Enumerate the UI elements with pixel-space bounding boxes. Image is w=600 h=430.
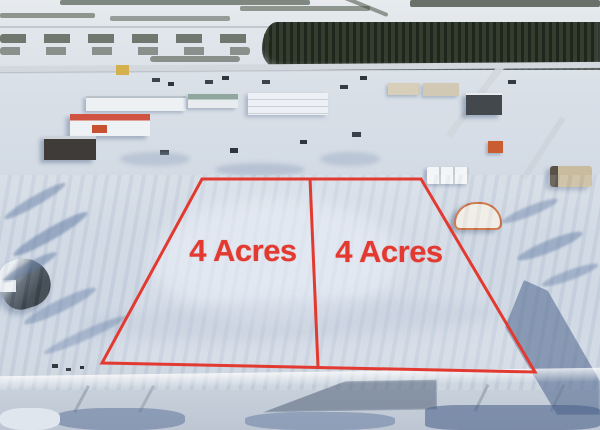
parcel-boundary-line	[102, 179, 535, 372]
parcel-overlay	[0, 0, 600, 430]
aerial-photo: 4 Acres 4 Acres	[0, 0, 600, 430]
parcel-label-right: 4 Acres	[330, 234, 448, 268]
parcel-label-left: 4 Acres	[184, 233, 302, 267]
